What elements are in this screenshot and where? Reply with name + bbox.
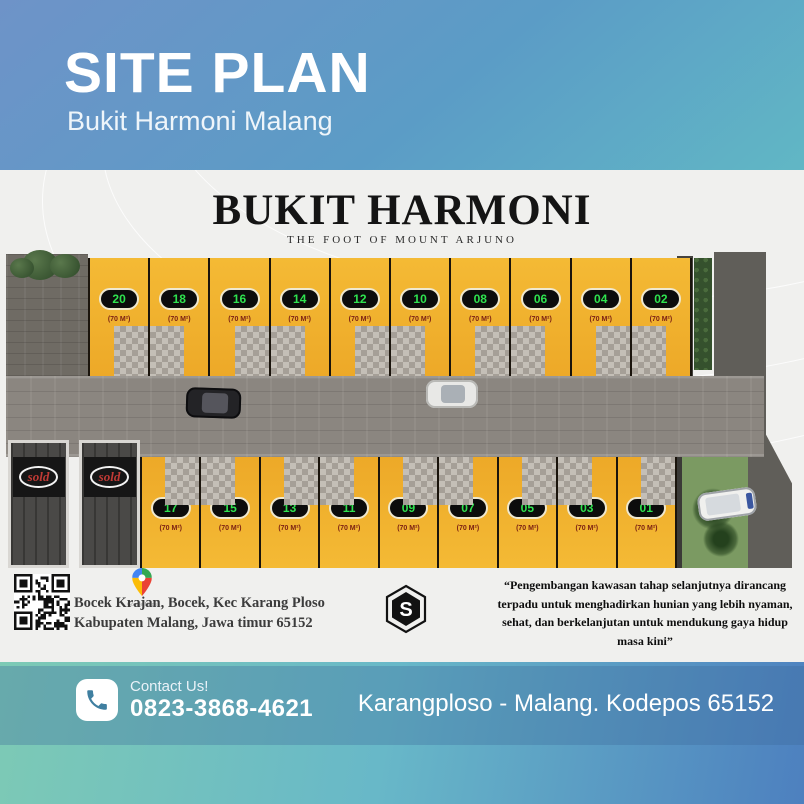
phone-icon (84, 687, 110, 713)
lot-01: 01(70 M²) (616, 457, 677, 568)
lot-area-label: (70 M²) (632, 316, 690, 323)
driveway (284, 457, 318, 505)
siteplan-card: BUKIT HARMONI THE FOOT OF MOUNT ARJUNO 2… (0, 170, 804, 662)
driveway (439, 457, 473, 505)
lot-17: 17(70 M²) (140, 457, 199, 568)
lot-04: 04(70 M²) (570, 258, 630, 376)
lot-row-top: 20(70 M²)18(70 M²)16(70 M²)14(70 M²)12(7… (88, 258, 692, 376)
developer-logo: S (383, 584, 429, 634)
lot-area-label: (70 M²) (572, 316, 630, 323)
lot-area-label: (70 M²) (271, 316, 329, 323)
lot-number-badge: 04 (581, 288, 621, 310)
hexagon-s-icon: S (383, 584, 429, 634)
driveway (403, 457, 437, 505)
footer-location: Karangploso - Malang. Kodepos 65152 (336, 690, 796, 718)
lot-16: 16(70 M²) (208, 258, 268, 376)
sold-houses: sold sold (8, 440, 140, 568)
lot-06: 06(70 M²) (509, 258, 569, 376)
lot-number-badge: 20 (99, 288, 139, 310)
lot-area-label: (70 M²) (142, 525, 199, 532)
lot-area-label: (70 M²) (451, 316, 509, 323)
map-pin-icon (132, 568, 152, 596)
lot-area-label: (70 M²) (618, 525, 675, 532)
lot-20: 20(70 M²) (88, 258, 148, 376)
lot-area-label: (70 M²) (150, 316, 208, 323)
driveway (558, 457, 592, 505)
driveway (165, 457, 199, 505)
lot-number-badge: 18 (159, 288, 199, 310)
driveway (641, 457, 675, 505)
driveway (150, 326, 184, 376)
lot-area-label: (70 M²) (391, 316, 449, 323)
lot-03: 03(70 M²) (556, 457, 615, 568)
driveway (522, 457, 556, 505)
lot-area-label: (70 M²) (499, 525, 556, 532)
lot-row-bottom: 17(70 M²)15(70 M²)13(70 M²)11(70 M²)09(7… (140, 457, 677, 568)
driveway (114, 326, 148, 376)
address-block: Bocek Krajan, Bocek, Kec Karang Ploso Ka… (74, 594, 344, 633)
hedge-strip (694, 258, 712, 370)
driveway (511, 326, 545, 376)
driveway (596, 326, 630, 376)
sold-house: sold (8, 440, 69, 568)
lot-area-label: (70 M²) (90, 316, 148, 323)
lot-area-label: (70 M²) (380, 525, 437, 532)
site-plan-render: 20(70 M²)18(70 M²)16(70 M²)14(70 M²)12(7… (0, 252, 804, 568)
marketing-quote: “Pengembangan kawasan tahap selanjutnya … (494, 576, 796, 650)
brand-tagline: THE FOOT OF MOUNT ARJUNO (0, 234, 804, 246)
lot-number-badge: 10 (400, 288, 440, 310)
driveway (271, 326, 305, 376)
lot-number-badge: 08 (460, 288, 500, 310)
lot-area-label: (70 M²) (511, 316, 569, 323)
driveway (391, 326, 425, 376)
palm-tree-icon (696, 514, 746, 564)
lot-number-badge: 14 (280, 288, 320, 310)
address-line-2: Kabupaten Malang, Jawa timur 65152 (74, 614, 344, 634)
bush-icon (50, 254, 80, 278)
hero-header: SITE PLAN Bukit Harmoni Malang (0, 0, 804, 170)
driveway (201, 457, 235, 505)
lot-18: 18(70 M²) (148, 258, 208, 376)
lot-12: 12(70 M²) (329, 258, 389, 376)
phone-number: 0823-3868-4621 (130, 695, 313, 723)
sold-signboard: sold (13, 457, 65, 497)
svg-text:S: S (399, 599, 412, 621)
lot-11: 11(70 M²) (318, 457, 377, 568)
contact-label: Contact Us! (130, 678, 208, 695)
car-silver-icon (426, 380, 478, 408)
lot-number-badge: 06 (521, 288, 561, 310)
lot-10: 10(70 M²) (389, 258, 449, 376)
driveway (235, 326, 269, 376)
lot-area-label: (70 M²) (201, 525, 258, 532)
driveway (632, 326, 666, 376)
brand-title: BUKIT HARMONI (0, 186, 804, 235)
footer: Contact Us! 0823-3868-4621 Karangploso -… (0, 662, 804, 804)
lot-number-badge: 12 (340, 288, 380, 310)
sold-house: sold (79, 440, 140, 568)
driveway (355, 326, 389, 376)
lot-05: 05(70 M²) (497, 457, 556, 568)
driveway (475, 326, 509, 376)
car-dark-icon (185, 387, 241, 419)
phone-icon-box (76, 679, 118, 721)
lot-13: 13(70 M²) (259, 457, 318, 568)
sold-signboard: sold (84, 457, 136, 497)
address-line-1: Bocek Krajan, Bocek, Kec Karang Ploso (74, 594, 344, 614)
page-title: SITE PLAN (64, 40, 371, 106)
lot-area-label: (70 M²) (210, 316, 268, 323)
lot-14: 14(70 M²) (269, 258, 329, 376)
lot-number-badge: 02 (641, 288, 681, 310)
bush-icon (10, 258, 34, 278)
lot-number-badge: 16 (220, 288, 260, 310)
lot-area-label: (70 M²) (331, 316, 389, 323)
lot-02: 02(70 M²) (630, 258, 692, 376)
lot-08: 08(70 M²) (449, 258, 509, 376)
sold-label: sold (90, 466, 130, 488)
flyer-page: SITE PLAN Bukit Harmoni Malang BUKIT HAR… (0, 0, 804, 804)
qr-code (14, 574, 70, 630)
lot-09: 09(70 M²) (378, 457, 437, 568)
lot-15: 15(70 M²) (199, 457, 258, 568)
lot-area-label: (70 M²) (261, 525, 318, 532)
driveway (320, 457, 354, 505)
page-subtitle: Bukit Harmoni Malang (67, 106, 333, 137)
sold-label: sold (19, 466, 59, 488)
lot-area-label: (70 M²) (439, 525, 496, 532)
lot-07: 07(70 M²) (437, 457, 496, 568)
lot-area-label: (70 M²) (558, 525, 615, 532)
lot-area-label: (70 M²) (320, 525, 377, 532)
